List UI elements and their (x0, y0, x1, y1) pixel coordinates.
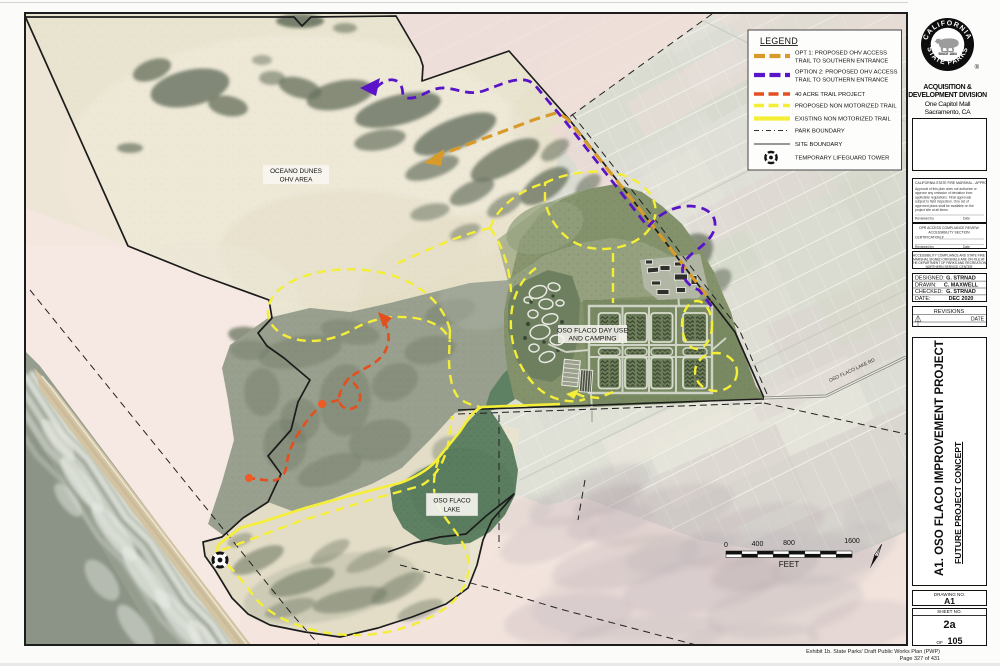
svg-text:DEC 2020: DEC 2020 (949, 296, 974, 301)
svg-text:DESIGNED:: DESIGNED: (915, 275, 945, 281)
svg-text:DATE:: DATE: (915, 296, 930, 301)
svg-text:CHECKED:: CHECKED: (915, 289, 943, 295)
svg-text:Reviewed by: Reviewed by (915, 245, 934, 248)
svg-text:OHV AREA: OHV AREA (280, 177, 313, 184)
svg-text:FEET: FEET (779, 560, 800, 569)
svg-text:TRAIL TO SOUTHERN ENTRANCE: TRAIL TO SOUTHERN ENTRANCE (795, 78, 888, 84)
svg-text:DATE: DATE (971, 317, 985, 323)
svg-text:OSO FLACO DAY USE: OSO FLACO DAY USE (557, 328, 628, 335)
svg-text:1600: 1600 (844, 538, 860, 545)
svg-text:0: 0 (724, 542, 728, 549)
svg-text:G. STRNAD: G. STRNAD (946, 289, 976, 295)
svg-text:800: 800 (783, 540, 795, 547)
svg-text:OPT 1: PROPOSED OHV ACCESS: OPT 1: PROPOSED OHV ACCESS (795, 51, 887, 57)
svg-text:PARK BOUNDARY: PARK BOUNDARY (795, 129, 845, 135)
svg-text:40 ACRE TRAIL PROJECT: 40 ACRE TRAIL PROJECT (795, 92, 866, 98)
svg-text:LAKE: LAKE (444, 507, 460, 514)
svg-text:NORTHERN SERVICE CENTER: NORTHERN SERVICE CENTER (926, 265, 974, 268)
svg-text:400: 400 (752, 541, 764, 548)
svg-text:REVISIONS: REVISIONS (934, 309, 965, 315)
svg-text:TEMPORARY LIFEGUARD TOWER: TEMPORARY LIFEGUARD TOWER (795, 156, 889, 162)
svg-text:Date: Date (963, 245, 970, 248)
svg-text:DPR ACCESS COMPLIANCE REVIEW: DPR ACCESS COMPLIANCE REVIEW (919, 226, 979, 230)
svg-text:ACCESSIBILITY SECTION: ACCESSIBILITY SECTION (928, 231, 970, 235)
svg-text:OPTION 2: PROPOSED OHV ACCESS: OPTION 2: PROPOSED OHV ACCESS (795, 70, 898, 76)
svg-text:SINCE 1864: SINCE 1864 (938, 52, 956, 56)
svg-text:G. STRNAD: G. STRNAD (946, 275, 976, 281)
svg-text:TRAIL TO SOUTHERN ENTRANCE: TRAIL TO SOUTHERN ENTRANCE (795, 59, 888, 65)
svg-text:PROPOSED NON MOTORIZED TRAIL: PROPOSED NON MOTORIZED TRAIL (795, 104, 897, 110)
svg-text:LEGEND: LEGEND (760, 36, 798, 46)
svg-text:Reviewed by: Reviewed by (915, 217, 934, 221)
svg-text:CALIFORNIA STATE FIRE MARSHAL: CALIFORNIA STATE FIRE MARSHAL - APPROVED (915, 181, 986, 185)
svg-text:Date: Date (963, 217, 970, 221)
svg-text:project site at all times.: project site at all times. (915, 208, 949, 212)
svg-text:OSO FLACO: OSO FLACO (433, 498, 470, 505)
svg-text:OCEANO DUNES: OCEANO DUNES (270, 168, 322, 175)
svg-text:AND CAMPING: AND CAMPING (569, 336, 617, 343)
svg-text:SITE BOUNDARY: SITE BOUNDARY (795, 142, 842, 148)
svg-text:C. MAXWELL: C. MAXWELL (944, 282, 979, 288)
svg-text:DRAWN:: DRAWN: (915, 282, 937, 288)
svg-text:EXISTING NON MOTORIZED TRAIL: EXISTING NON MOTORIZED TRAIL (795, 117, 892, 123)
